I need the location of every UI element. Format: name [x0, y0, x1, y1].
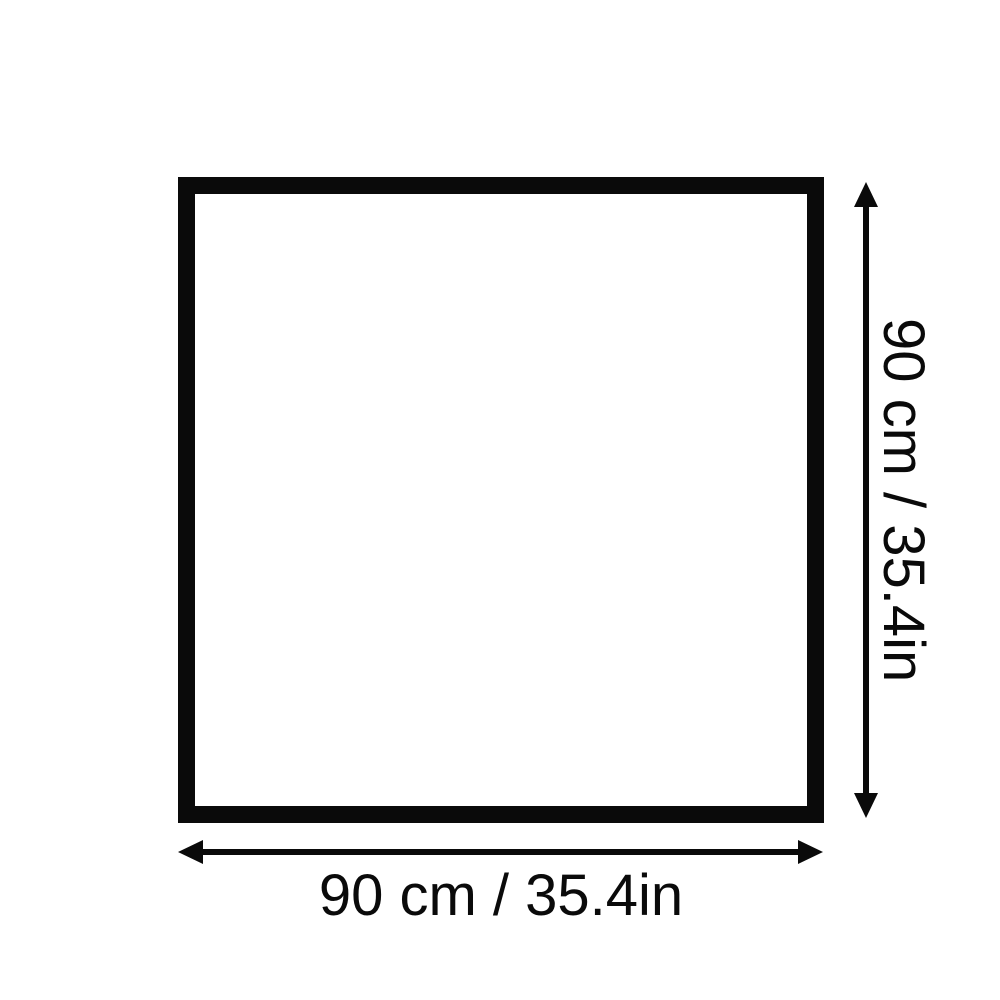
arrow-shaft — [196, 849, 805, 855]
width-dimension-label: 90 cm / 35.4in — [178, 864, 824, 928]
height-dimension-label: 90 cm / 35.4in — [874, 177, 932, 823]
product-outline-square — [178, 177, 824, 823]
arrow-shaft — [863, 200, 869, 800]
arrowhead-right-icon — [798, 840, 823, 864]
width-double-arrow-icon — [178, 840, 823, 864]
dimension-diagram: 90 cm / 35.4in 90 cm / 35.4in — [0, 0, 1000, 1000]
